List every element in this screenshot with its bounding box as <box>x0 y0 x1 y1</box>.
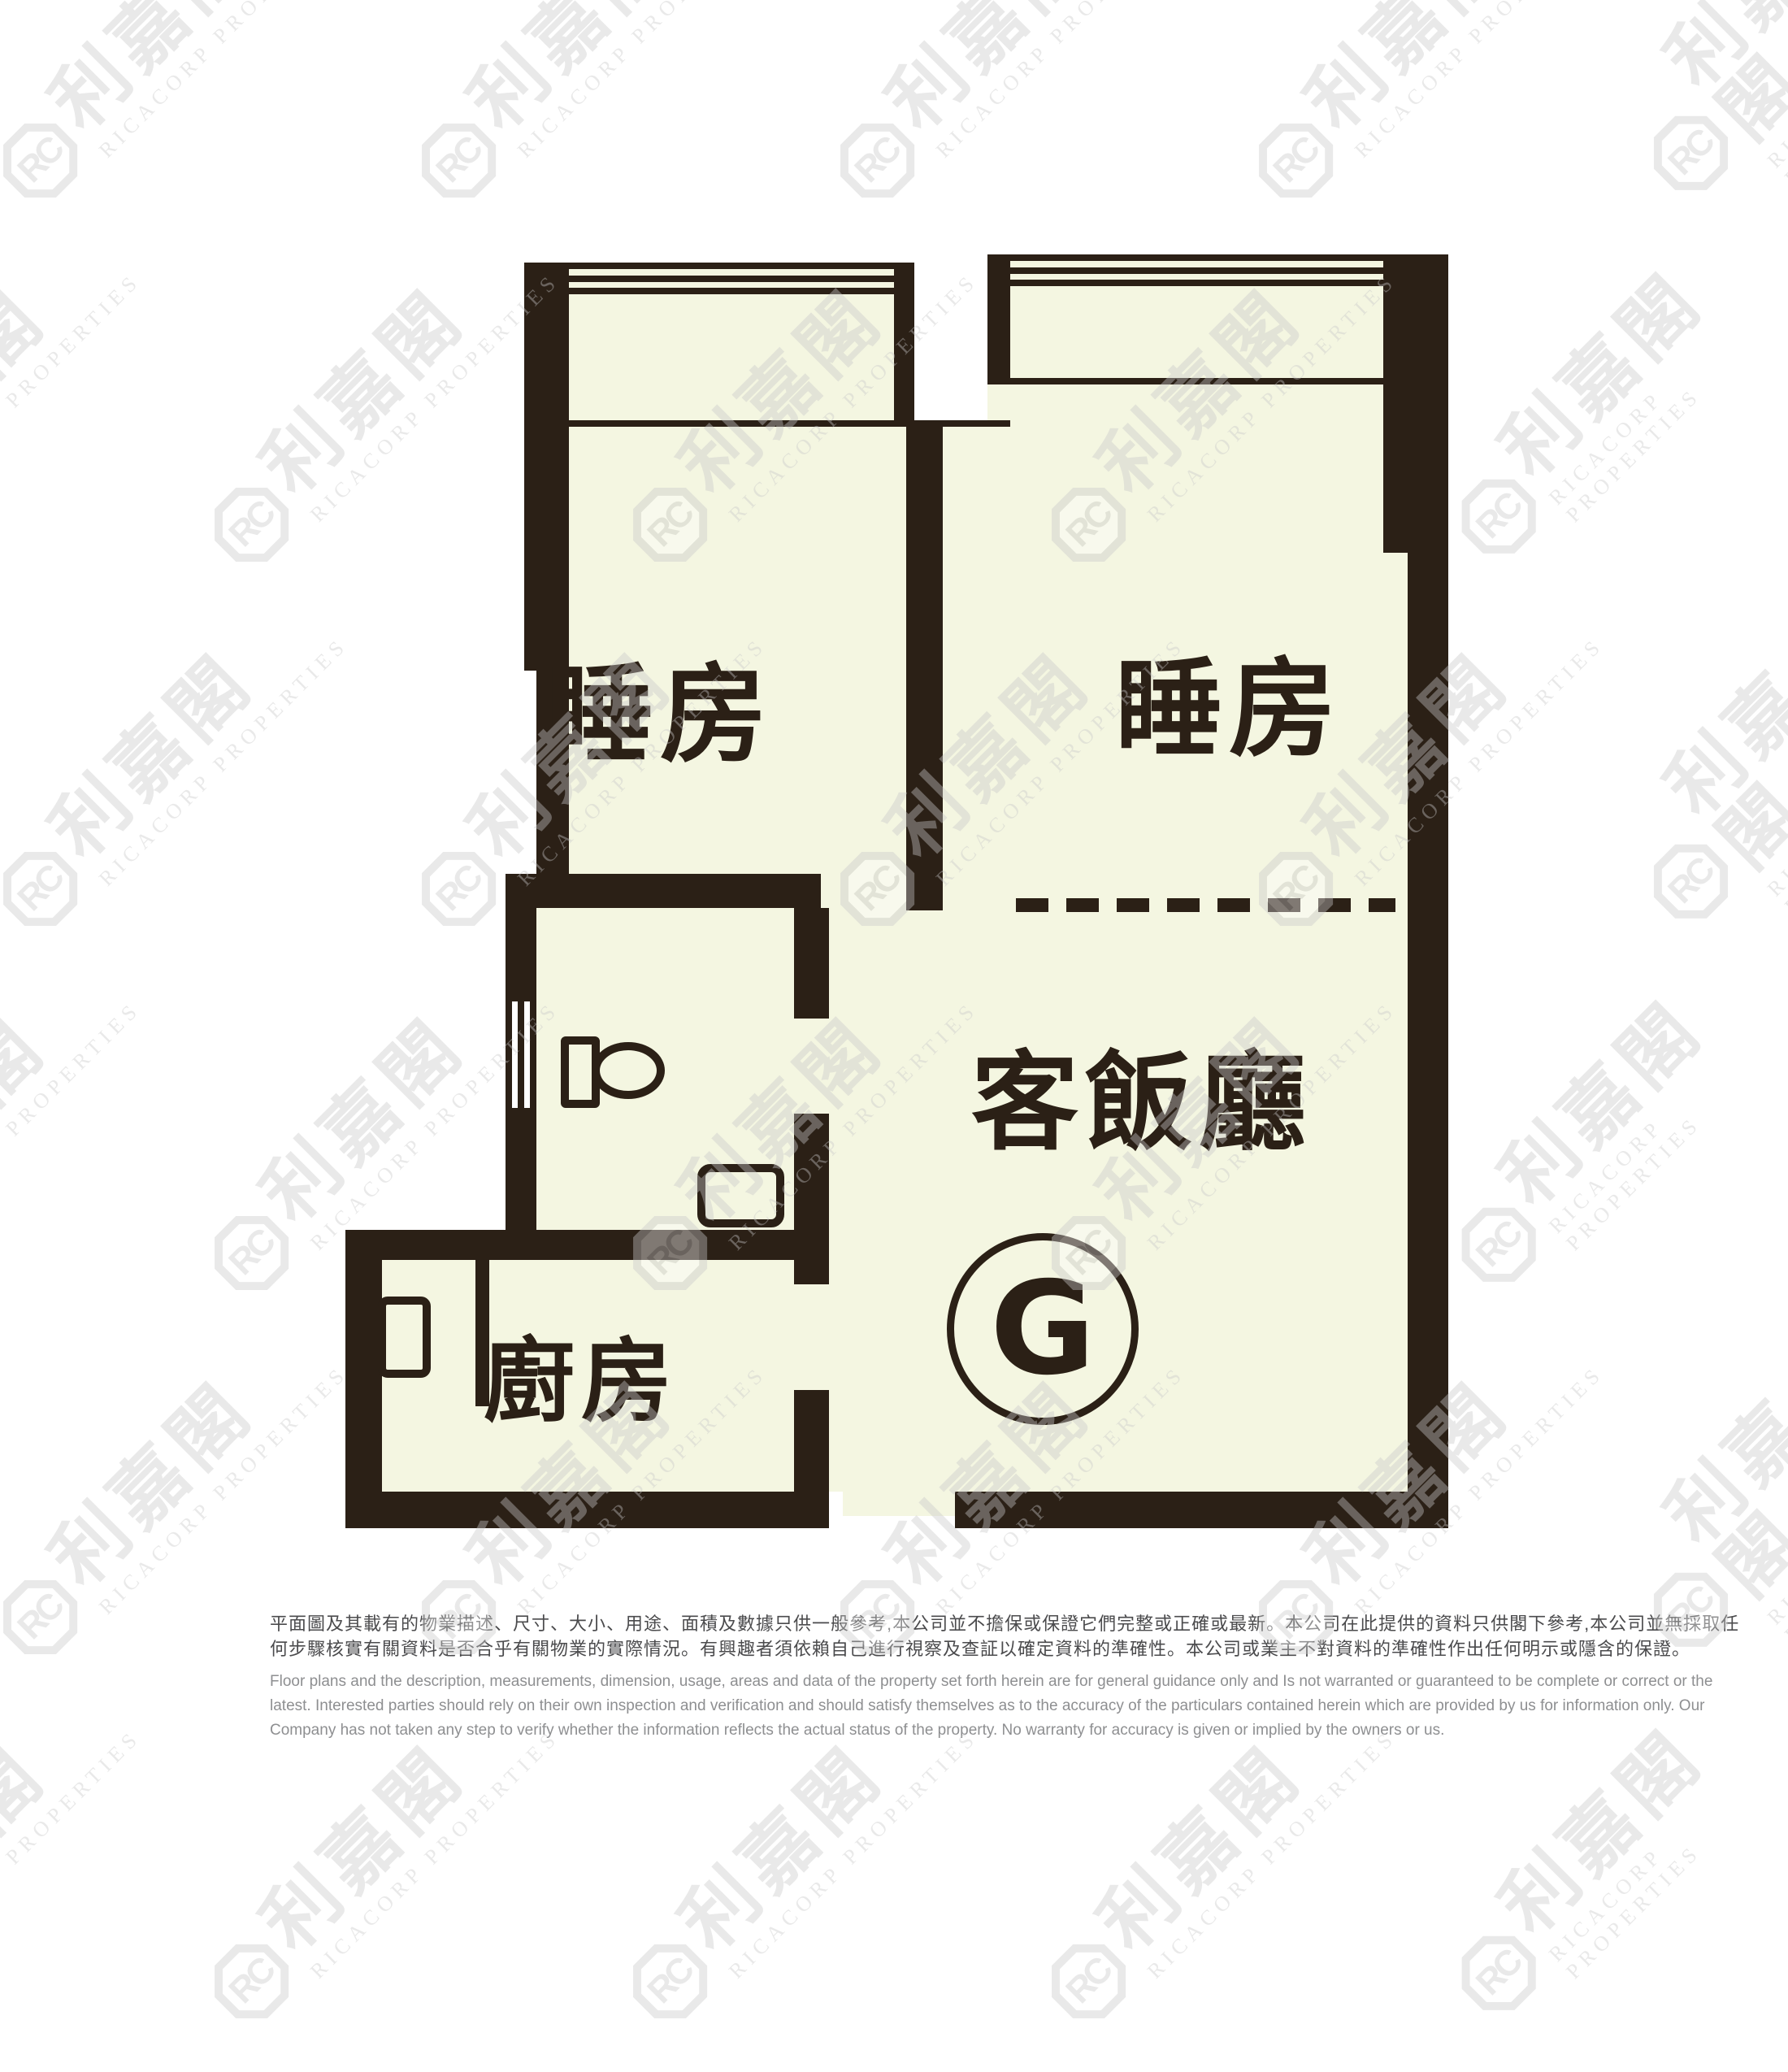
room-label-living-dining: 客飯廳 <box>971 1049 1313 1157</box>
entrance-doorway-floor <box>843 1492 955 1516</box>
bay-window-sill <box>1010 378 1410 384</box>
kitchen-doorway-floor <box>794 1284 829 1390</box>
wall <box>345 1230 829 1260</box>
window-glazing <box>1010 254 1383 261</box>
unit-badge: G <box>947 1233 1139 1425</box>
disclaimer-zh-line2: 何步驟核實有關資料是否合乎有關物業的實際情況。有興趣者須依賴自己進行視察及查証以… <box>270 1636 1700 1662</box>
room-label-kitchen: 廚房 <box>484 1336 679 1427</box>
wall <box>345 1492 829 1528</box>
floor-plan: 睡房 睡房 客飯廳 廚房 G <box>0 0 1788 1788</box>
disclaimer-en-line1: Floor plans and the description, measure… <box>270 1670 1700 1694</box>
bedroom1-floor <box>569 427 906 874</box>
wall <box>955 1492 1448 1528</box>
living-room-floor <box>829 908 1408 1492</box>
wall <box>506 874 821 908</box>
window-glazing <box>1010 267 1383 274</box>
floorplan-page: { "colors": { "wall": "#2b2016", "floor_… <box>0 0 1788 1788</box>
unit-letter: G <box>990 1265 1096 1393</box>
wall <box>506 908 536 1001</box>
wall <box>1408 553 1448 1528</box>
bedroom2-floor <box>943 427 1010 910</box>
wall <box>524 263 569 671</box>
toilet-bowl-icon <box>592 1042 665 1099</box>
ricacorp-logo-icon: RC <box>1446 1920 1551 2026</box>
ricacorp-logo-icon: RC <box>199 1928 305 2034</box>
window-glazing <box>569 263 914 269</box>
sink-icon <box>697 1164 784 1227</box>
wall <box>1383 254 1448 553</box>
wall <box>345 1260 382 1528</box>
disclaimer-en-line2: latest. Interested parties should rely o… <box>270 1694 1700 1718</box>
bathroom-window-glazing <box>506 1001 536 1108</box>
disclaimer-zh-line1: 平面圖及其載有的物業描述、尺寸、大小、用途、面積及數據只供一般參考,本公司並不擔… <box>270 1611 1700 1636</box>
wall <box>794 1260 829 1284</box>
kitchen-appliance-icon <box>378 1297 431 1378</box>
ricacorp-logo-icon: RC <box>618 1928 723 2034</box>
wall <box>894 263 914 427</box>
window-glazing <box>569 288 914 294</box>
window-glazing <box>1010 280 1383 286</box>
room-label-bedroom1: 睡房 <box>546 662 774 769</box>
bedroom2-floor <box>1010 384 1383 553</box>
wall <box>794 1390 829 1528</box>
disclaimer: 平面圖及其載有的物業描述、尺寸、大小、用途、面積及數據只供一般參考,本公司並不擔… <box>270 1611 1700 1743</box>
bay-window-sill <box>569 420 914 427</box>
wall <box>987 254 1010 384</box>
wall <box>906 420 943 910</box>
disclaimer-en-line3: Company has not taken any step to verify… <box>270 1718 1700 1743</box>
divider <box>270 1662 1700 1670</box>
window-glazing <box>569 276 914 282</box>
room-label-bedroom2: 睡房 <box>1115 656 1343 763</box>
wall <box>506 1108 536 1230</box>
doorway-floor <box>821 874 906 908</box>
bathroom-doorway-floor <box>794 1019 829 1114</box>
wall <box>794 908 829 1019</box>
ricacorp-logo-icon: RC <box>1036 1928 1142 2034</box>
dashed-partition-line <box>1016 898 1395 912</box>
